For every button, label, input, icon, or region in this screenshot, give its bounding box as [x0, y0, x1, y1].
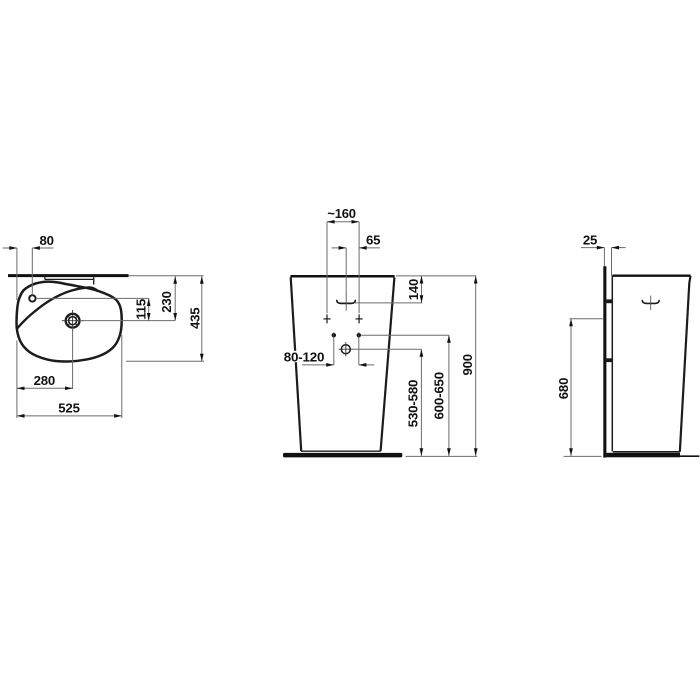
svg-text:600-650: 600-650: [431, 372, 446, 420]
svg-text:230: 230: [159, 291, 174, 312]
svg-text:280: 280: [34, 373, 55, 388]
svg-text:140: 140: [406, 279, 421, 300]
svg-text:435: 435: [187, 308, 202, 329]
svg-text:680: 680: [556, 378, 571, 399]
svg-text:25: 25: [583, 233, 597, 248]
svg-text:65: 65: [366, 233, 380, 248]
svg-text:80: 80: [39, 233, 53, 248]
svg-text:~160: ~160: [327, 206, 356, 221]
svg-text:900: 900: [460, 354, 475, 375]
svg-text:115: 115: [134, 299, 149, 320]
svg-text:525: 525: [58, 401, 79, 416]
svg-text:80-120: 80-120: [284, 349, 325, 364]
svg-text:530-580: 530-580: [405, 380, 420, 428]
